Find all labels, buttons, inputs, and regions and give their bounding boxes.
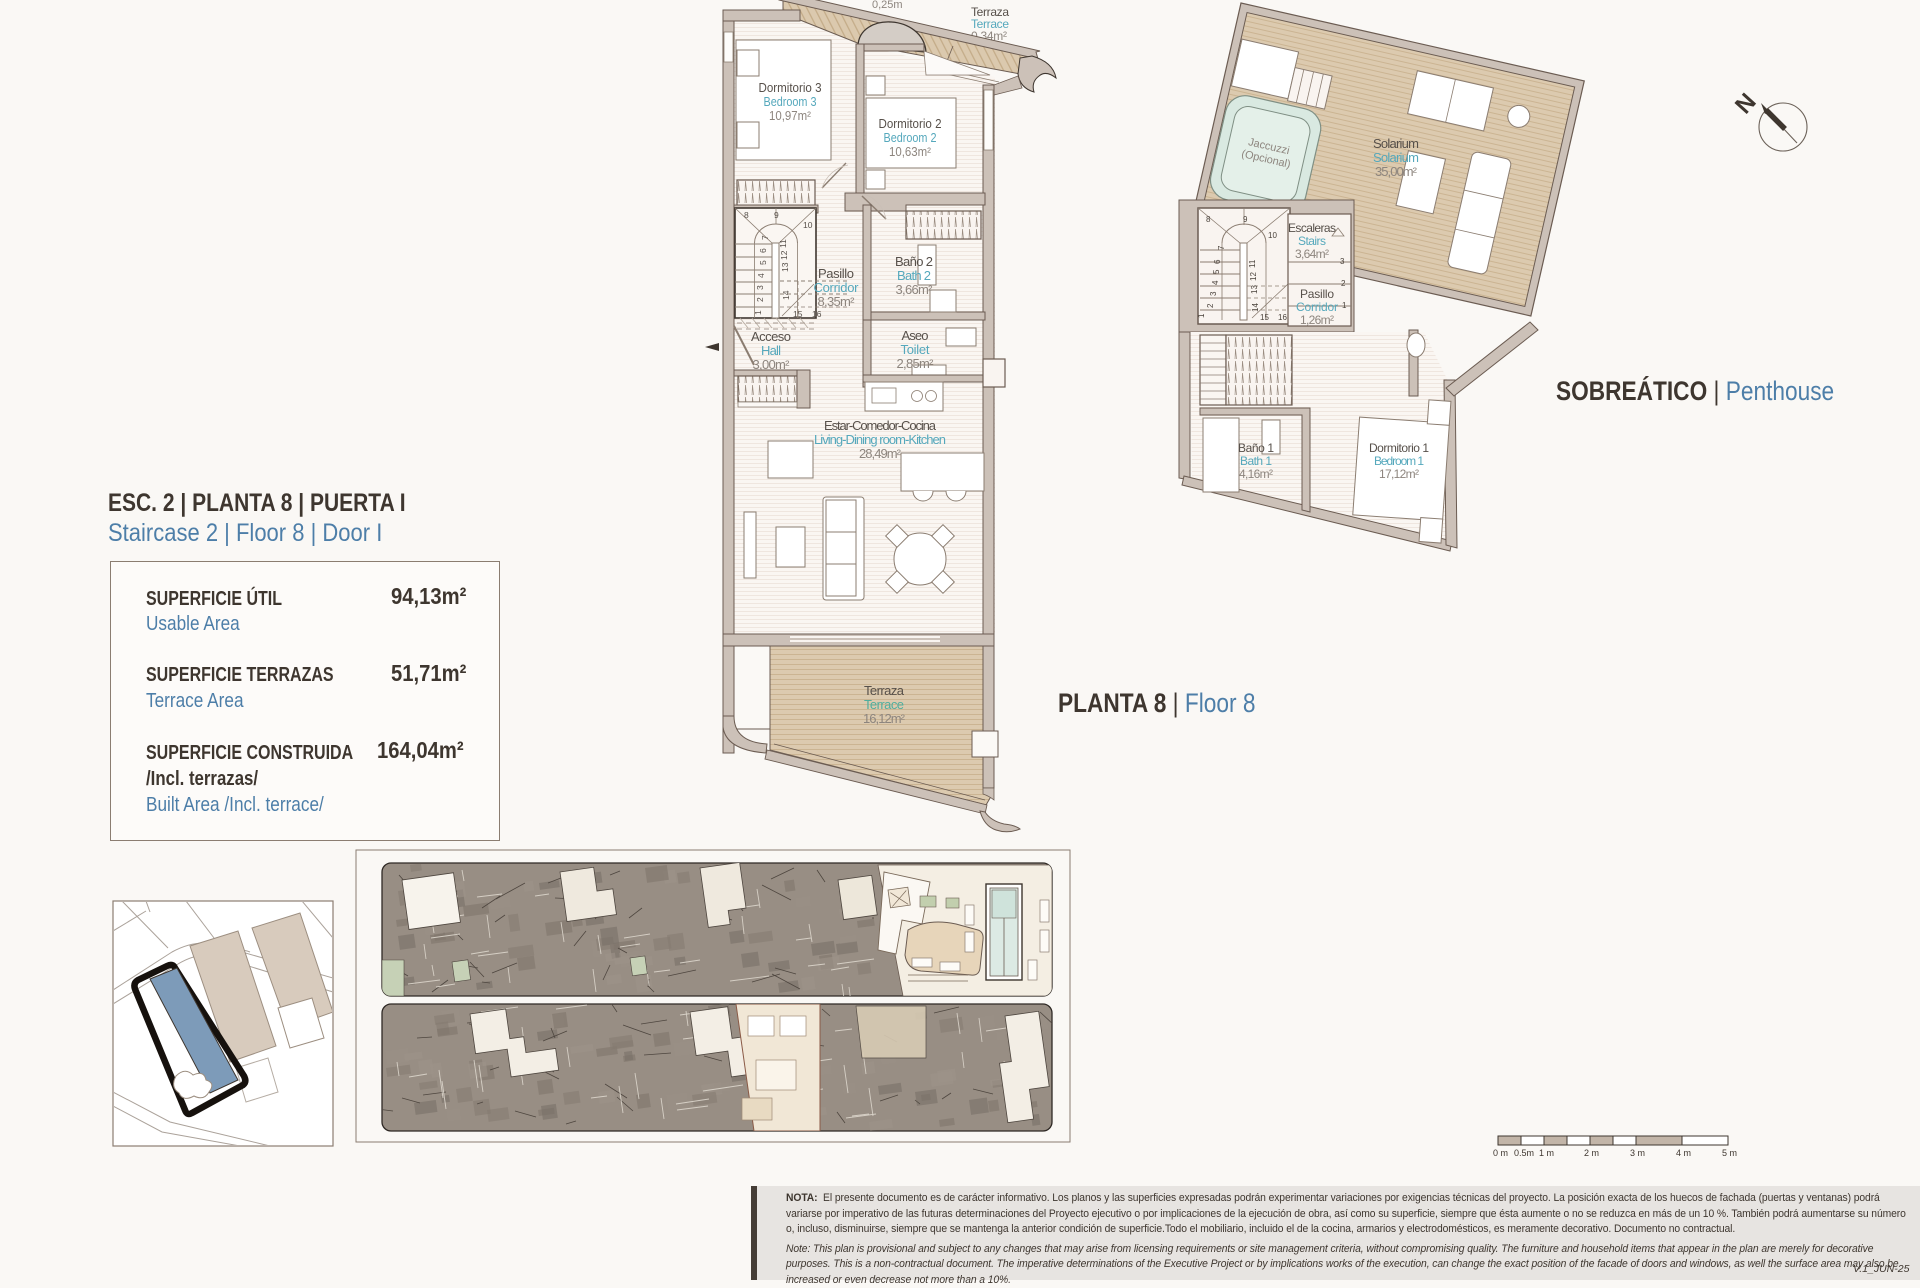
svg-text:1: 1 [1197, 313, 1206, 318]
svg-text:N: N [1730, 88, 1762, 119]
svg-text:11: 11 [778, 239, 788, 248]
svg-text:Baño 1: Baño 1 [1238, 441, 1274, 455]
svg-text:Baño 2: Baño 2 [895, 254, 933, 269]
svg-text:Pasillo: Pasillo [818, 266, 854, 281]
svg-text:Escaleras: Escaleras [1288, 221, 1336, 235]
svg-text:Bath 2: Bath 2 [897, 268, 931, 283]
svg-text:Terraza: Terraza [864, 683, 905, 698]
svg-text:Stairs: Stairs [1298, 234, 1326, 248]
svg-text:Bedroom 1: Bedroom 1 [1374, 454, 1424, 468]
svg-text:4: 4 [756, 273, 766, 278]
svg-text:1 m: 1 m [1539, 1148, 1554, 1158]
svg-text:Solarium: Solarium [1373, 150, 1419, 165]
svg-text:Aseo: Aseo [902, 328, 929, 343]
svg-text:5: 5 [1212, 269, 1221, 274]
svg-text:15: 15 [1260, 313, 1269, 322]
svg-text:Pasillo: Pasillo [1300, 287, 1334, 301]
svg-text:8: 8 [744, 210, 749, 220]
svg-text:10,63m²: 10,63m² [889, 144, 932, 159]
svg-text:14: 14 [781, 290, 791, 300]
svg-text:Dormitorio 2: Dormitorio 2 [879, 116, 942, 131]
svg-text:14: 14 [1251, 303, 1260, 312]
svg-text:2: 2 [1206, 303, 1215, 308]
svg-text:15: 15 [793, 309, 803, 319]
svg-text:3 m: 3 m [1630, 1148, 1645, 1158]
svg-text:0.5m: 0.5m [1514, 1148, 1534, 1158]
svg-text:8,35m²: 8,35m² [818, 294, 856, 309]
svg-text:4,16m²: 4,16m² [1239, 467, 1273, 481]
svg-text:3: 3 [755, 285, 765, 290]
svg-text:Toilet: Toilet [901, 342, 930, 357]
svg-text:Bedroom 3: Bedroom 3 [764, 94, 817, 109]
svg-text:0 m: 0 m [1493, 1148, 1508, 1158]
svg-text:8: 8 [1206, 215, 1211, 224]
svg-text:9: 9 [1243, 215, 1248, 224]
svg-text:13: 13 [1250, 285, 1259, 294]
svg-text:16: 16 [1278, 313, 1287, 322]
svg-text:1,26m²: 1,26m² [1300, 313, 1334, 327]
svg-text:3,64m²: 3,64m² [1295, 247, 1329, 261]
svg-text:2: 2 [755, 297, 765, 302]
svg-text:10: 10 [803, 220, 813, 230]
svg-text:16,12m²: 16,12m² [863, 711, 906, 726]
svg-text:Solarium: Solarium [1373, 136, 1419, 151]
svg-text:1: 1 [753, 310, 763, 315]
svg-text:3: 3 [1209, 291, 1218, 296]
svg-text:12: 12 [1249, 272, 1258, 281]
svg-text:Corridor: Corridor [814, 280, 860, 295]
svg-text:3,66m²: 3,66m² [896, 282, 934, 297]
svg-text:35,00m²: 35,00m² [1375, 164, 1418, 179]
svg-text:6: 6 [758, 248, 768, 253]
svg-text:3: 3 [1340, 257, 1345, 266]
svg-text:11: 11 [1248, 259, 1257, 268]
svg-text:10,97m²: 10,97m² [769, 108, 812, 123]
svg-text:2: 2 [1341, 279, 1346, 288]
svg-text:Acceso: Acceso [751, 329, 791, 344]
svg-text:13: 13 [780, 262, 790, 272]
svg-text:0,25m: 0,25m [872, 0, 903, 11]
svg-text:10: 10 [1268, 231, 1277, 240]
svg-text:5: 5 [758, 260, 768, 265]
svg-text:Terrace: Terrace [864, 697, 904, 712]
svg-text:2 m: 2 m [1584, 1148, 1599, 1158]
svg-text:7: 7 [1217, 245, 1226, 250]
svg-text:Corridor: Corridor [1296, 300, 1338, 314]
svg-text:16: 16 [812, 309, 822, 319]
svg-text:5 m: 5 m [1722, 1148, 1737, 1158]
svg-text:1: 1 [1342, 301, 1347, 310]
svg-text:Dormitorio 1: Dormitorio 1 [1369, 441, 1429, 455]
svg-text:Estar-Comedor-Cocina: Estar-Comedor-Cocina [824, 418, 937, 433]
svg-text:Bedroom 2: Bedroom 2 [884, 130, 937, 145]
svg-text:4 m: 4 m [1676, 1148, 1691, 1158]
svg-text:Dormitorio 3: Dormitorio 3 [759, 80, 822, 95]
svg-text:Living-Dining room-Kitchen: Living-Dining room-Kitchen [814, 432, 946, 447]
svg-text:9: 9 [774, 210, 779, 220]
svg-text:4: 4 [1211, 280, 1220, 285]
svg-text:2,85m²: 2,85m² [897, 356, 935, 371]
svg-text:7: 7 [760, 235, 770, 240]
svg-text:12: 12 [779, 250, 789, 260]
svg-text:Hall: Hall [761, 343, 781, 358]
svg-text:28,49m²: 28,49m² [859, 446, 902, 461]
svg-text:17,12m²: 17,12m² [1379, 467, 1419, 481]
svg-text:Bath 1: Bath 1 [1240, 454, 1272, 468]
svg-text:6: 6 [1213, 259, 1222, 264]
